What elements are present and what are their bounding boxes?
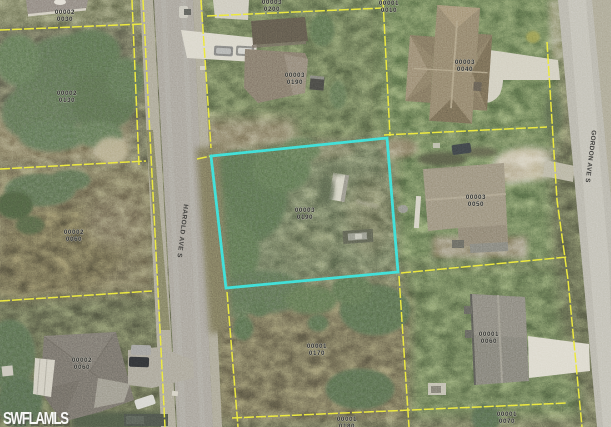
svg-text:SWFLAMLS: SWFLAMLS: [3, 409, 69, 427]
